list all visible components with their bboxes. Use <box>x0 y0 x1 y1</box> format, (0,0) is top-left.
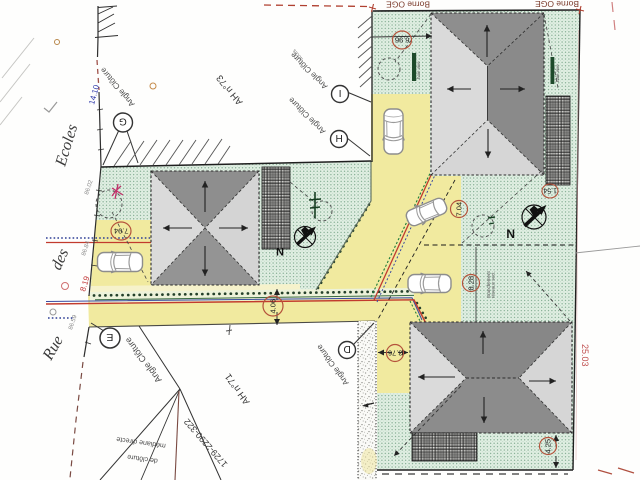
svg-text:E: E <box>106 331 113 343</box>
svg-text:7.04: 7.04 <box>455 202 464 217</box>
svg-text:N: N <box>506 227 515 241</box>
svg-text:1.54: 1.54 <box>543 187 557 194</box>
svg-text:4.25: 4.25 <box>544 439 553 454</box>
svg-text:haie vive: haie vive <box>416 61 421 79</box>
svg-text:25.03: 25.03 <box>580 344 590 367</box>
svg-text:haie vive: haie vive <box>555 64 560 82</box>
svg-text:7.94: 7.94 <box>114 226 129 235</box>
svg-text:Borne OGE: Borne OGE <box>535 0 579 9</box>
svg-text:I: I <box>339 87 342 98</box>
svg-text:Borne OGE: Borne OGE <box>386 0 430 10</box>
svg-text:4.06: 4.06 <box>269 299 278 314</box>
svg-text:H: H <box>336 132 343 143</box>
svg-text:8.28: 8.28 <box>467 276 476 291</box>
svg-text:6.96: 6.96 <box>395 35 410 44</box>
svg-text:N: N <box>276 245 284 257</box>
svg-text:G: G <box>119 116 127 127</box>
svg-text:D: D <box>343 343 350 354</box>
svg-text:3.76: 3.76 <box>388 348 403 357</box>
svg-text:réseaux sect.: réseaux sect. <box>491 271 496 298</box>
